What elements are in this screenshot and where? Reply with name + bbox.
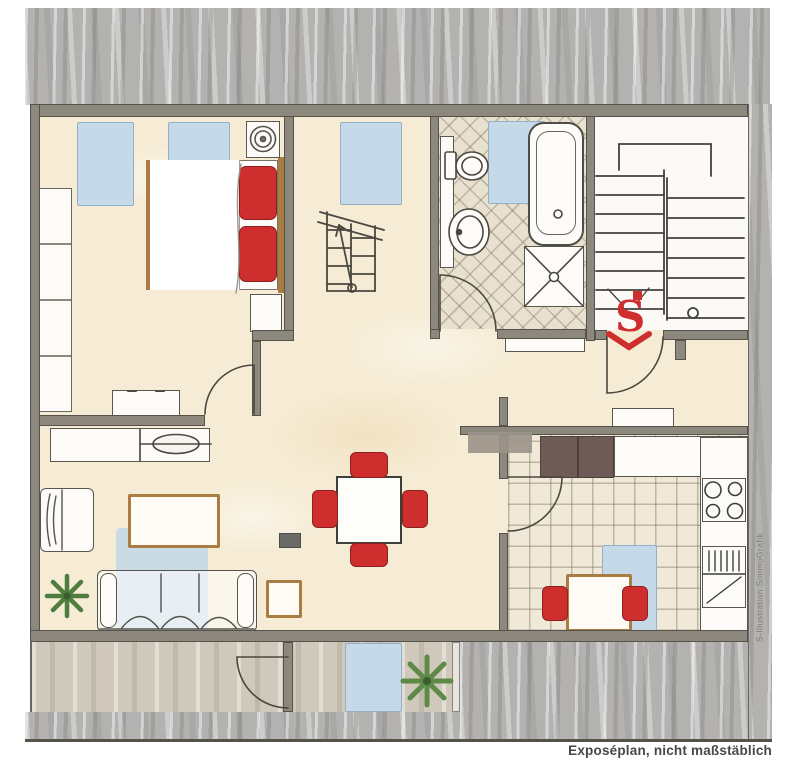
sparkasse-logo-icon: S (608, 288, 649, 347)
eaves-door-arc (237, 657, 288, 708)
bathroom-door-arc (440, 275, 496, 331)
plant-living (47, 576, 87, 616)
appliance-detail (703, 551, 745, 603)
bed-fold-line (236, 164, 241, 293)
kitchen-door-arc (508, 477, 562, 531)
sink (449, 209, 489, 255)
footer-caption: Exposéplan, nicht maßstäblich (568, 743, 772, 758)
stove-burners (705, 482, 743, 519)
sideboard-bowl (141, 435, 211, 454)
floor-plan-canvas: S Exposéplan, nicht maßstäblich S-Illust… (0, 0, 794, 777)
toilet (445, 152, 488, 180)
shower-x (525, 247, 583, 306)
sparkasse-logo-letter: S (615, 292, 645, 341)
plant-eaves (403, 657, 451, 705)
credit-vertical-text: S-Illustration:SimmoGrafik (751, 492, 768, 642)
sofa-cushion-lines (100, 574, 254, 629)
internal-staircase (318, 212, 384, 292)
bedroom-door-arc (205, 365, 254, 414)
line-art-overlay: S (0, 0, 794, 777)
ceiling-fan-icon (251, 127, 276, 152)
armchair-lines (47, 490, 62, 550)
tub-drain (554, 210, 562, 218)
